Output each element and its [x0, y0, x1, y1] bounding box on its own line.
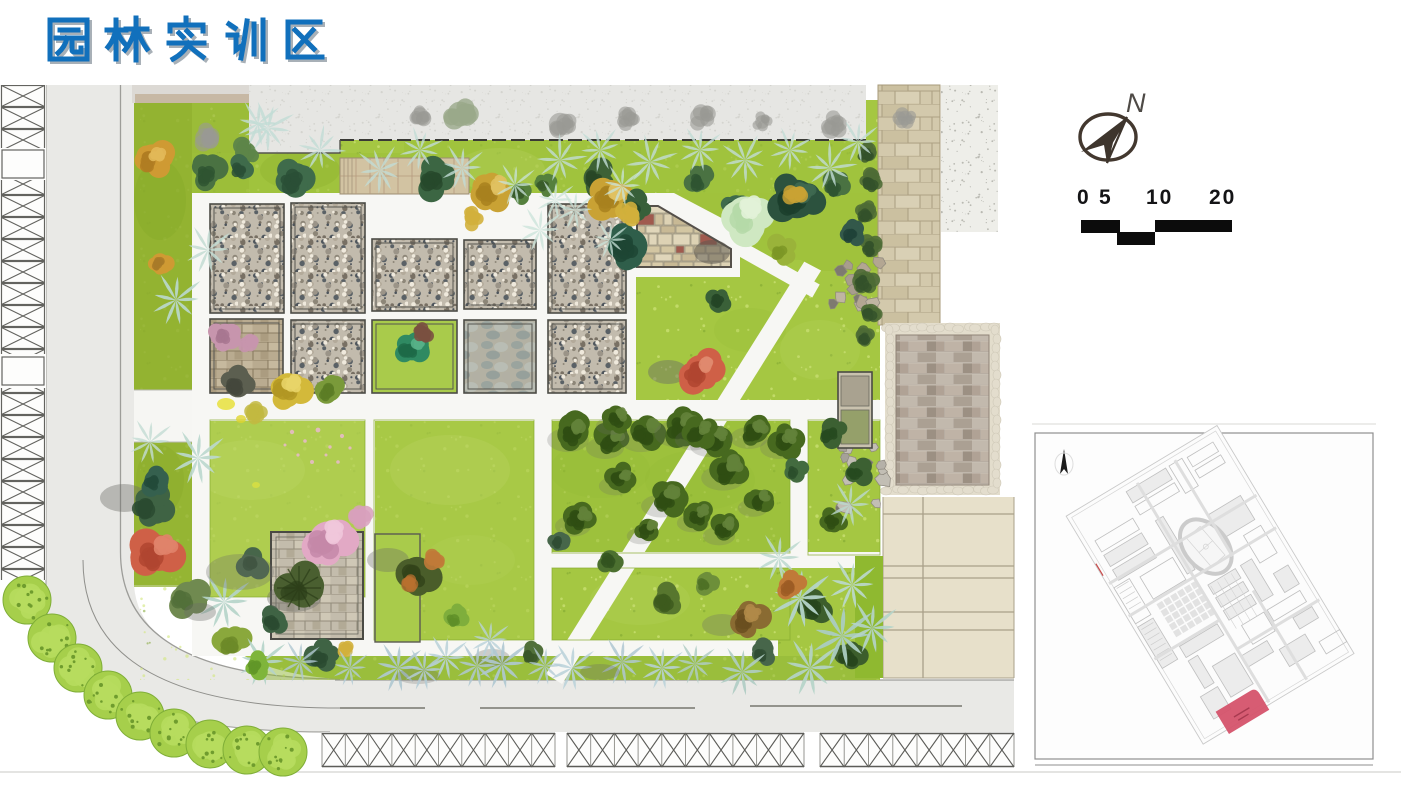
svg-text:10: 10: [1146, 186, 1173, 209]
svg-text:20: 20: [1209, 186, 1236, 209]
svg-text:N: N: [1126, 88, 1146, 118]
svg-text:0: 0: [1077, 186, 1089, 209]
svg-text:5: 5: [1099, 186, 1111, 209]
